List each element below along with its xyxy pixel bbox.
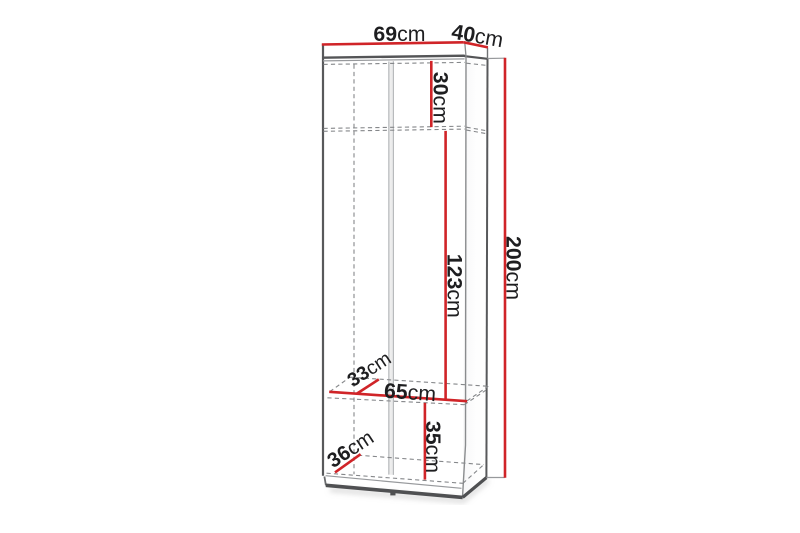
svg-text:123cm: 123cm [442, 254, 466, 318]
svg-text:35cm: 35cm [421, 421, 445, 473]
svg-text:200cm: 200cm [502, 236, 526, 300]
svg-text:36cm: 36cm [323, 426, 378, 473]
svg-text:30cm: 30cm [428, 72, 452, 124]
svg-text:65cm: 65cm [383, 379, 437, 407]
svg-text:40cm: 40cm [450, 20, 505, 53]
svg-text:69cm: 69cm [373, 22, 425, 46]
